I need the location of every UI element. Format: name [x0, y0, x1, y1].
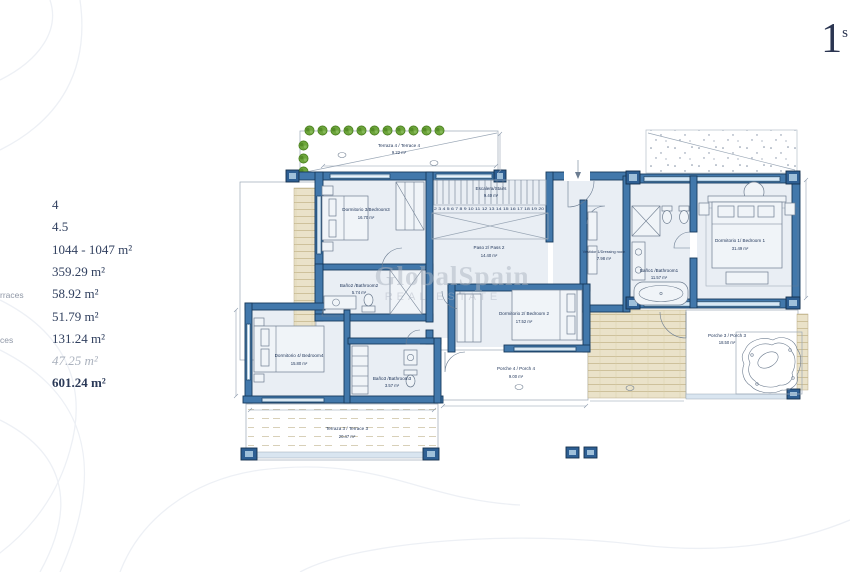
room-label: Dormitorio 3/Bedroom3: [342, 207, 390, 212]
spec-value: 1044 - 1047 m²: [52, 242, 132, 258]
post: [286, 170, 299, 182]
post: [241, 448, 257, 460]
spec-value: 601.24 m²: [52, 375, 106, 391]
shower-icon: [632, 206, 660, 236]
post: [786, 297, 800, 309]
plant-icon: [422, 126, 431, 135]
room-label: Escalera/Stairs: [476, 186, 508, 191]
plant-icon: [299, 154, 308, 163]
page: { "floor_badge": {"number": "1", "supers…: [0, 0, 850, 572]
sink-icon: [632, 242, 645, 280]
porch3: Porche 3 / Porch 3 18.50 m²: [708, 332, 802, 394]
plant-icon: [299, 141, 308, 150]
room-label: Baño3 /Bathroom3: [373, 376, 412, 381]
room-area: 9.22 m²: [392, 150, 407, 155]
stair-numbers: 2 3 4 5 6 7 8 9 10 11 12 13 14 15 16 17 …: [434, 207, 544, 211]
plant-icon: [318, 126, 327, 135]
spec-row: 51.79 m²: [0, 309, 230, 331]
post: [786, 171, 800, 184]
plant-icon: [435, 126, 444, 135]
plant-icon: [305, 126, 314, 135]
room-area: 9.00 m²: [509, 374, 524, 379]
spec-row: 4: [0, 197, 230, 219]
spec-label: ces: [0, 335, 50, 345]
post: [566, 447, 579, 458]
room-label: Dormitorio 2/ Bedroom 2: [499, 311, 549, 316]
post: [423, 448, 439, 460]
spec-value: 4: [52, 197, 59, 213]
spec-value: 51.79 m²: [52, 309, 99, 325]
room-area: 31.49 m²: [732, 246, 749, 251]
plant-icon: [396, 126, 405, 135]
spec-row: 1044 - 1047 m²: [0, 242, 230, 264]
floor-number: 1: [821, 16, 842, 62]
spec-row: 4.5: [0, 219, 230, 241]
spec-value: 4.5: [52, 219, 68, 235]
room-area: 18.50 m²: [719, 340, 736, 345]
room-label: Terraza 3 / Terrace 3: [326, 426, 368, 431]
spec-row: ces 131.24 m²: [0, 331, 230, 353]
watermark-line1: GlobalSpain: [374, 261, 529, 291]
plant-icon: [357, 126, 366, 135]
plant-icon: [331, 126, 340, 135]
watermark-line2: REAL ESTATE: [385, 291, 502, 303]
room-area: 14.40 m²: [481, 253, 498, 258]
jacuzzi-icon: [742, 338, 801, 393]
toilet-icon: [662, 206, 672, 224]
room-area: 11.57 m²: [651, 275, 668, 280]
room-area: 16.70 m²: [358, 215, 375, 220]
room-label: Dormitorio 1/ Bedroom 1: [715, 238, 765, 243]
spec-row: 359.29 m²: [0, 264, 230, 286]
room-label: Baño1 /Bathroom1: [640, 268, 679, 273]
room-area: 15.80 m²: [291, 361, 308, 366]
sink-icon: [404, 350, 417, 365]
shelves-icon: [352, 346, 368, 394]
room-label: Porche 4 / Porch 4: [497, 366, 535, 371]
plant-icon: [383, 126, 392, 135]
room-area: 9.40 m²: [484, 193, 499, 198]
sink-icon: [324, 296, 356, 309]
room-area: 7.98 m²: [597, 256, 612, 261]
room-area: 3.57 m²: [385, 383, 400, 388]
spec-row: 601.24 m²: [0, 375, 230, 397]
spec-row: 47.25 m²: [0, 353, 230, 375]
room-area: 5.74 m²: [352, 290, 367, 295]
porch4: Porche 4 / Porch 4 9.00 m²: [497, 366, 535, 379]
room-area: 20.47 m²: [339, 434, 356, 439]
spec-value: 359.29 m²: [52, 264, 105, 280]
spec-value: 58.92 m²: [52, 286, 99, 302]
room-label: Porche 3 / Porch 3: [708, 333, 746, 338]
room-area: 17.52 m²: [516, 319, 533, 324]
room-label: Dormitorio 4/ Bedroom4: [275, 353, 324, 358]
post: [626, 171, 640, 184]
spec-value: 131.24 m²: [52, 331, 105, 347]
plant-icon: [409, 126, 418, 135]
plant-icon: [370, 126, 379, 135]
plant-icon: [344, 126, 353, 135]
room-label: Baño2 /Bathroom2: [340, 283, 379, 288]
terrace4: Terraza 4 / Terrace 4 9.22 m²: [300, 131, 498, 175]
plants-row: [299, 126, 444, 176]
roof-gravel-area: [646, 130, 797, 173]
floor-number-suffix: s: [842, 25, 848, 41]
post: [584, 447, 597, 458]
room-label: Paso 2/ Pass 2: [474, 245, 505, 250]
room-label: Terraza 4 / Terrace 4: [378, 143, 420, 148]
room-label: Vestidor 1/Dressing room: [583, 250, 626, 254]
wardrobe-icon: [396, 182, 424, 230]
spec-label: rraces: [0, 290, 50, 300]
bathtub-icon: [634, 282, 688, 305]
spec-row: rraces 58.92 m²: [0, 286, 230, 308]
floor-number-badge: 1s: [821, 18, 848, 60]
bidet-icon: [679, 206, 689, 224]
spec-value: 47.25 m²: [52, 353, 98, 369]
